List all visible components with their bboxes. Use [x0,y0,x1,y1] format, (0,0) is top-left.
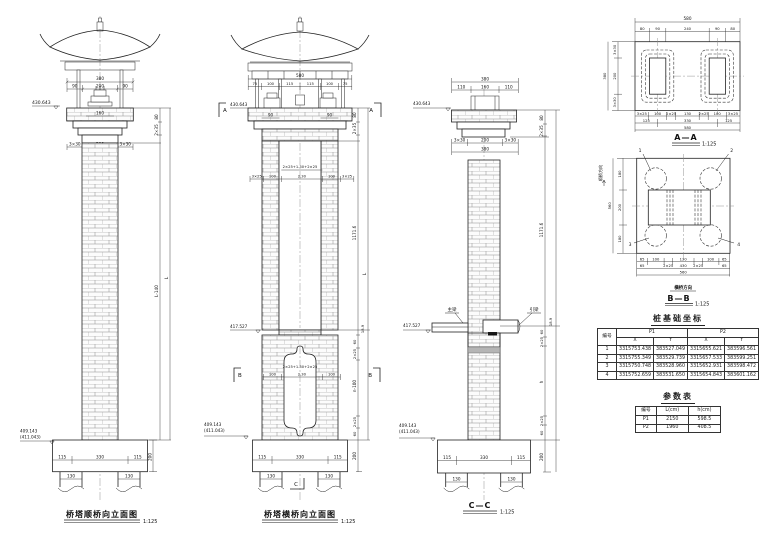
dim-pile-left: 130 [267,474,275,479]
dim-130: 130 [680,257,688,261]
dim-v2x25t: 2×25 [353,348,357,359]
side-scale: 1:125 [341,519,355,525]
dim-b100r: 100 [714,112,722,116]
drawing-sheet: 380 90 200 90 430.643 160 3×30 200 3×30 … [0,0,760,552]
dim-arch-formula: 2×25+1.30+2×25 [283,365,318,369]
dim-foot-height: 200 [148,453,153,461]
side-elevation-drawing: 580 75 100 115 115 100 75 A A 430.643 90… [200,8,400,528]
dim-top-total: 380 [481,77,489,82]
pile-1-label: 1 [639,148,642,154]
axis-across-label: 横桥方向 [673,284,692,291]
main-beam-label: 主梁 [448,306,457,313]
dim-t75l: 75 [253,82,258,86]
section-a-right: A [369,108,373,114]
cc-footing: 115 330 115 [438,440,531,473]
aa-dims-top: 580 80 90 240 90 80 [635,16,740,42]
dim-upper-height: 1171.6 [539,222,544,237]
dim-b-total: 560 [680,271,688,275]
dim-l200: 200 [613,72,617,80]
bearing-pad [488,332,497,336]
dim-vn100: n-100 [352,380,357,392]
dim-v2x35: 2×35 [154,124,159,136]
col-p2y: Y [725,337,759,346]
dim-col90l: 90 [268,113,274,118]
dim-200: 200 [618,203,622,211]
dim-b3x25l: 3×25 [637,112,648,116]
dim-foot-right: 115 [134,455,142,460]
dim-t115r: 115 [307,82,315,86]
dim-foot-mid: 330 [96,455,104,460]
dim-v80: 80 [352,112,357,118]
cc-right-dim-chain: 80 2×35 1171.6 18.9 60 2×25 h 2×25 60 20… [500,110,560,472]
bb-title: B—B [667,294,690,303]
dim-l-total: 380 [603,72,607,80]
elev-top-label: 430.643 [230,102,248,107]
axis-along-label: 顺桥方向 [597,165,604,182]
dim-430: 430 [680,264,688,268]
dim-80l: 80 [640,27,645,31]
col-p2: P2 [687,329,758,338]
front-elevation-drawing: 380 90 200 90 430.643 160 3×30 200 3×30 … [18,8,218,528]
dim-b3x25r: 3×25 [728,112,739,116]
col-p1x: X [617,337,654,346]
pile-4-label: 4 [737,242,740,248]
dim-foot-height: 200 [539,453,544,461]
dim-v2x35: 2×35 [352,122,357,134]
table-row: P2 1960 408.5 [636,424,721,433]
dim-roof-total: 380 [96,76,104,81]
dim-m330: 330 [684,119,692,123]
dim-t100r: 100 [326,82,334,86]
front-right-dim-chain: 80 2×35 L-140 L [118,108,171,440]
dim-80r: 80 [730,27,735,31]
dim-v2x35: 2×35 [539,125,544,137]
dim-65r: 65 [722,257,727,261]
dim-180b: 180 [618,235,622,243]
dim-m125l: 125 [643,119,651,123]
dim-pile-left: 130 [67,474,75,479]
dim-foot-right: 115 [517,455,525,460]
elev-base-alt-label: (411.043) [204,428,225,433]
dim-b-total: 580 [684,126,692,130]
tables-block: 桩基础坐标 编号 P1 P2 X Y X Y 1 3315753.438 383… [596,306,760,433]
dim-t110l: 110 [457,85,465,90]
bb-dims-bottom: 65 100 130 100 65 65 2×25 430 2×25 65 56… [637,253,730,276]
dim-v18-9: 18.9 [361,324,365,333]
col-id: 编号 [636,407,657,416]
dim-cap-inner: 160 [96,111,104,116]
cc-elev-base: 409.143 (411.043) [399,423,435,441]
dim-shaft-height: 1171.6 [352,225,357,240]
dim-2x25r: 2×25 [693,264,704,268]
col-id: 编号 [598,329,617,346]
side-cap: 90 90 [248,108,352,129]
pile-2-label: 2 [730,148,733,154]
cc-title-block: C—C 1:125 [463,501,514,516]
side-title-block: 桥塔横桥向立面图 1:125 [262,509,355,525]
dim-foot-left: 115 [58,455,66,460]
table-row: 1 3315753.438 383527.049 3315655.621 383… [598,346,759,355]
cc-scale: 1:125 [500,510,514,516]
col-l: L(cm) [656,407,688,416]
aa-dims-bottom: 3×25 100 2×25 130 2×25 100 3×25 125 330 … [635,111,740,133]
elev-base-label: 409.143 [399,423,417,428]
dim-foot-mid: 330 [296,455,304,460]
dim-cap3x30l: 3×30 [454,138,466,143]
front-elev-top: 430.643 [32,100,60,109]
dim-v18-9: 18.9 [549,317,553,326]
dim-shaft-left: 3×30 [69,142,81,147]
elev-base-alt-label: (411.043) [399,429,420,434]
dim-b2x25r: 2×25 [699,112,710,116]
table-row: 3 3315750.748 383528.960 3315652.931 383… [598,363,759,372]
dim-240: 240 [684,27,692,31]
dim-v80: 80 [539,115,544,121]
elev-beam-label: 417.527 [403,323,421,328]
dim-v60t: 60 [540,329,544,334]
front-title-block: 桥塔顺桥向立面图 1:125 [64,509,157,525]
side-section-c-marker: C [290,478,304,489]
dim-total-height: L [362,272,367,275]
parameters-table: 编号 L(cm) h(cm) P1 2150 598.5 P2 1960 408… [635,406,721,433]
dim-t110r: 110 [505,85,513,90]
dim-l3x30b: 3×30 [613,97,617,108]
dim-v2x25b: 2×25 [540,415,544,426]
pile-coordinates-table: 编号 P1 P2 X Y X Y 1 3315753.438 383527.04… [597,328,759,380]
dim-roof-mid: 200 [96,84,104,89]
side-elev-base: 409.143 (411.043) [204,422,248,439]
dim-pile-right: 130 [325,474,333,479]
side-lower-body: 2×25+1.30+2×25 100 2.30 100 [262,335,340,440]
dim-o3x25r: 3×25 [342,175,353,179]
front-title: 桥塔顺桥向立面图 [66,509,138,519]
side-legs [262,129,338,335]
dim-col90r: 90 [327,113,333,118]
elev-base-label: 409.143 [20,429,38,434]
elev-top-label: 430.643 [32,100,51,106]
dim-shaft-height: L-140 [154,285,159,297]
dim-o100l: 100 [269,175,277,179]
dim-cap3x30r: 3×30 [505,138,517,143]
dim-90r: 90 [715,27,720,31]
dim-pile-right: 130 [508,477,516,482]
cc-cap: 3×30 200 3×30 380 [452,96,519,155]
dim-a100r: 100 [328,373,336,377]
aa-dims-left: 3×30 200 3×30 380 [603,42,635,111]
dim-cap-total: 380 [481,147,489,152]
dim-b130: 130 [684,112,692,116]
dim-t75r: 75 [343,82,348,86]
col-p2x: X [687,337,724,346]
cc-elev-top: 430.643 [413,101,451,111]
dim-top-total: 580 [296,73,304,78]
dim-v60b: 60 [353,431,357,436]
aa-body [631,38,744,114]
bb-body [632,154,734,258]
aa-title: A—A [674,133,697,142]
dim-v2x25b: 2×25 [353,416,357,427]
cc-elev-beam: 417.527 [403,323,431,333]
dim-opening-formula: 2×25+1.30+2×25 [283,165,318,169]
front-elev-base: 409.143 (411.043) [20,429,54,445]
dim-t100l: 100 [267,82,275,86]
dim-foot-height: 200 [352,452,357,460]
front-footing: 115 330 115 200 [53,440,158,472]
dim-100l: 100 [652,257,660,261]
table-row: 2 3315755.349 383529.739 3315657.533 383… [598,354,759,363]
dim-65r2: 65 [722,264,727,268]
dim-100r: 100 [707,257,715,261]
dim-l-total: 560 [608,202,612,210]
side-title: 桥塔横桥向立面图 [264,509,336,519]
dim-l3x30t: 3×30 [613,44,617,55]
section-b-left: B [238,373,242,379]
dim-65l2: 65 [640,264,645,268]
coords-table-heading: 桩基础坐标 [596,306,760,326]
dim-b2x25l: 2×25 [666,112,677,116]
aa-section-drawing: 580 80 90 240 90 80 3×30 200 3×30 380 3×… [598,8,760,156]
bb-title-block: 横桥方向 B—B 1:125 [665,284,709,308]
dim-v60t: 60 [353,339,357,344]
elev-base-label: 409.143 [204,422,222,427]
dim-foot-right: 115 [334,455,342,460]
dim-foot-left: 115 [258,455,266,460]
dim-a230: 2.30 [298,373,307,377]
cc-title: C—C [469,501,492,510]
section-c-label: C [294,482,298,488]
approach-beam-label: 引梁 [530,306,539,313]
elev-beam-label: 417.527 [230,324,248,329]
table-row: 4 3315752.659 383531.650 3315654.843 383… [598,371,759,380]
bb-dims-left: 180 200 180 560 顺桥方向 [597,158,637,253]
dim-180t: 180 [618,170,622,178]
section-a-left: A [223,108,227,114]
dim-foot-left: 115 [443,455,451,460]
dim-pile-right: 130 [125,474,133,479]
col-h: h(cm) [688,407,720,416]
section-b-right: B [368,373,372,379]
dim-v2x25t: 2×25 [540,336,544,347]
dim-t115l: 115 [286,82,294,86]
dim-o100r: 100 [328,175,336,179]
side-elev-beam: 417.527 [230,324,261,333]
bb-plan-drawing: 1 2 3 4 180 200 180 560 顺桥方向 65 100 130 … [592,142,760,310]
dim-b100l: 100 [654,112,662,116]
front-scale: 1:125 [143,519,157,525]
side-footing: 115 330 115 [253,440,348,472]
dim-total-height: L [164,276,169,279]
dim-roof-left: 90 [72,84,78,89]
cc-section-drawing: 380 110 160 110 3×30 200 3×30 380 430.64… [395,75,595,525]
col-p1: P1 [617,329,688,338]
elev-top-label: 430.643 [413,101,431,106]
dim-v60b: 60 [540,430,544,435]
front-cap: 160 [67,108,134,143]
dim-m125r: 125 [725,119,733,123]
dim-total: 580 [684,16,692,21]
dim-65l: 65 [640,257,645,261]
cc-shaft [468,160,500,440]
side-right-dim-chain: 80 2×35 1171.6 L 18.9 60 2×25 n-100 2×25… [338,108,370,472]
dim-2x25l: 2×25 [663,264,674,268]
dim-90l: 90 [655,27,660,31]
dim-pile-left: 130 [453,477,461,482]
dim-t160: 160 [481,85,489,90]
front-shaft [82,143,118,440]
dim-a100l: 100 [269,373,277,377]
params-table-heading: 参数表 [596,384,760,404]
dim-vh: h [539,380,544,383]
cc-top-dims: 380 110 160 110 [452,77,519,94]
dim-cap200: 200 [481,138,489,143]
dim-shaft-right: 3×30 [119,142,131,147]
dim-o3x25l: 3×25 [252,175,263,179]
pile-3-label: 3 [629,242,632,248]
dim-o230: 2.30 [298,175,307,179]
dim-foot-mid: 330 [480,455,488,460]
table-row: P1 2150 598.5 [636,416,721,425]
dim-roof-right: 90 [123,84,129,89]
elev-base-alt-label: (411.043) [20,435,41,440]
col-p1y: Y [654,337,688,346]
dim-v80: 80 [154,114,159,120]
